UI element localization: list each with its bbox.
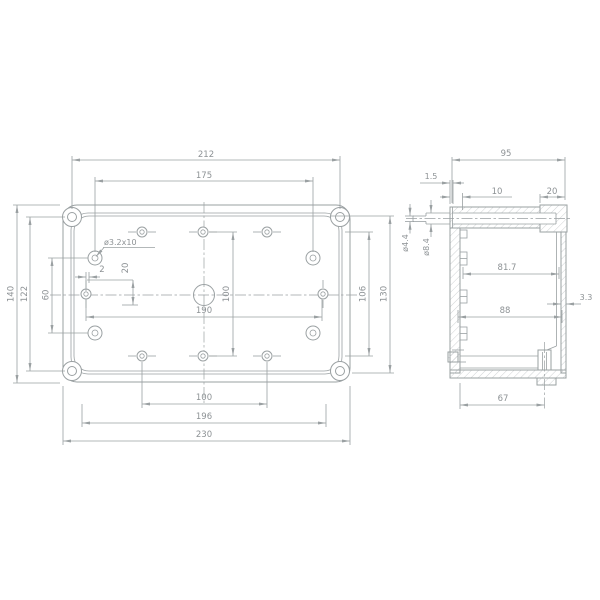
dim-arrow <box>389 216 392 224</box>
dim-arrow <box>453 182 461 185</box>
dimension-text: 100 <box>222 286 232 302</box>
dim-arrow <box>78 276 86 279</box>
dimension-text: 190 <box>196 306 212 316</box>
dim-arrow <box>460 404 468 407</box>
dim-arrow <box>63 440 71 443</box>
dim-arrow <box>72 159 80 162</box>
dim-arrow <box>259 403 267 406</box>
dimension-text: 212 <box>198 150 214 160</box>
dimension-text: 230 <box>196 430 212 440</box>
dim-arrow <box>51 258 54 266</box>
dim-arrow <box>342 440 350 443</box>
dimension-text: 88 <box>500 306 511 316</box>
dim-arrow <box>89 276 97 279</box>
dimension-text: 130 <box>380 286 390 302</box>
dimension-text: 10 <box>492 187 503 197</box>
dimension-text: 175 <box>196 171 212 181</box>
dim-arrow <box>430 205 433 213</box>
dim-arrow <box>51 325 54 333</box>
dim-arrow <box>318 422 326 425</box>
dim-arrow <box>409 208 412 216</box>
front-view <box>50 202 357 404</box>
dim-arrow <box>566 303 574 306</box>
dim-arrow <box>29 363 32 371</box>
dimension-layer: 21217514012260106130100196230190100202ø3… <box>7 149 593 445</box>
dim-arrow <box>430 224 433 232</box>
dimension-text: 3.3 <box>580 293 593 302</box>
dimension-text: ø4.4 <box>401 234 410 252</box>
dim-arrow <box>368 348 371 356</box>
dim-arrow <box>442 196 450 199</box>
dim-arrow <box>557 196 565 199</box>
dim-arrow <box>537 404 545 407</box>
dimension-text: 106 <box>359 286 369 302</box>
dim-arrow <box>132 297 135 305</box>
dim-arrow <box>132 280 135 288</box>
dim-arrow <box>95 180 103 183</box>
dimension-text: 60 <box>42 290 52 301</box>
dim-arrow <box>332 159 340 162</box>
dim-arrow <box>442 182 450 185</box>
dim-arrow <box>29 217 32 225</box>
dim-arrow <box>551 273 559 276</box>
inner-detail-lines <box>460 232 557 368</box>
technical-drawing: 21217514012260106130100196230190100202ø3… <box>0 0 600 600</box>
dimension-text: 1.5 <box>425 172 438 181</box>
dim-arrow <box>452 159 460 162</box>
dim-arrow <box>16 205 19 213</box>
dimension-text: 100 <box>196 393 212 403</box>
dimension-text: 20 <box>121 263 131 274</box>
bottom-screw-tube <box>537 350 556 385</box>
bottom-wall-section <box>450 370 566 378</box>
dimension-text: 95 <box>501 149 512 159</box>
dim-arrow <box>232 348 235 356</box>
dim-arrow <box>463 196 471 199</box>
dimension-text: 196 <box>196 412 212 422</box>
dimension-text: 122 <box>20 286 30 302</box>
dim-arrow <box>86 316 94 319</box>
dim-arrow <box>553 303 561 306</box>
dimension-text: 2 <box>99 265 104 275</box>
dim-arrow <box>16 375 19 383</box>
dim-arrow <box>368 232 371 240</box>
wall-standoffs <box>460 230 467 340</box>
dimension-text: 140 <box>7 286 17 302</box>
dim-arrow <box>389 365 392 373</box>
dimension-text: 20 <box>547 187 558 197</box>
dim-arrow <box>305 180 313 183</box>
drawing-page: 21217514012260106130100196230190100202ø3… <box>0 0 600 600</box>
dim-arrow <box>82 422 90 425</box>
left-wall-section <box>450 228 460 373</box>
dimension-text: 81.7 <box>498 263 517 273</box>
dim-arrow <box>463 273 471 276</box>
dim-arrow <box>557 159 565 162</box>
dim-arrow <box>142 403 150 406</box>
dimension-text: ø8.4 <box>422 238 431 256</box>
right-wall-section <box>561 232 566 373</box>
dim-arrow <box>314 316 322 319</box>
dimension-text: 67 <box>498 394 509 404</box>
dim-arrow <box>232 232 235 240</box>
dim-arrow <box>409 222 412 230</box>
dimension-text: ø3.2x10 <box>104 238 137 247</box>
